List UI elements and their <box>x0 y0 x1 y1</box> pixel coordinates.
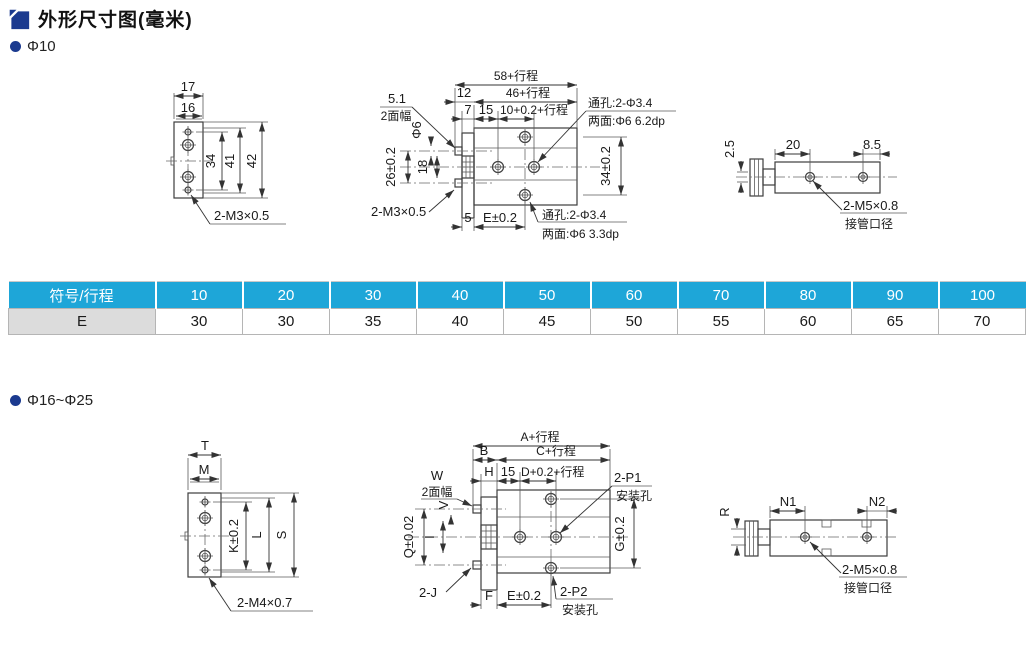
section-marker-icon <box>8 8 30 30</box>
section-phi10-text: Φ10 <box>27 38 56 55</box>
callout-thru-top-2: 两面:Φ6 6.2dp <box>588 114 665 128</box>
dim-side-20: 20 <box>786 137 800 152</box>
dim-plate2-S: S <box>274 530 289 539</box>
bullet-icon <box>10 41 21 52</box>
dim-body-bore: 10+0.2+行程 <box>500 102 568 117</box>
dim-body-5: 5 <box>464 210 471 225</box>
dim-plate-42: 42 <box>244 154 259 168</box>
table-e-value: 65 <box>852 309 939 335</box>
table-header-stroke: 90 <box>852 282 939 309</box>
dim-rod-span: 26±0.2 <box>383 147 398 187</box>
dim-plate-34: 34 <box>203 154 218 168</box>
dim-body-7: 7 <box>464 102 471 117</box>
callout-thru-bot-1: 通孔:2-Φ3.4 <box>542 208 607 222</box>
dim-body-46: 46+行程 <box>506 85 550 100</box>
stroke-dimension-table: 符号/行程 10 20 30 40 50 60 70 80 90 100 E 3… <box>8 281 1026 335</box>
page: { "page": { "title": "外形尺寸图(毫米)", "secti… <box>0 0 1032 663</box>
dim-body-12: 12 <box>457 85 471 100</box>
table-e-value: 60 <box>765 309 852 335</box>
dim-body2-B: B <box>480 443 489 458</box>
callout-port-label: 接管口径 <box>845 216 893 231</box>
callout-p2-label: 安装孔 <box>562 602 598 617</box>
section-phi10-label: Φ10 <box>10 38 56 55</box>
dim-body2-total: A+行程 <box>520 429 559 444</box>
callout-port2-thread: 2-M5×0.8 <box>842 562 897 577</box>
callout-plate-thread: 2-M3×0.5 <box>214 208 269 223</box>
callout-p1-label: 安装孔 <box>616 488 652 503</box>
table-e-value: 70 <box>939 309 1026 335</box>
table-e-value: 35 <box>330 309 417 335</box>
dim-side2-N2: N2 <box>869 494 886 509</box>
page-title: 外形尺寸图(毫米) <box>38 5 193 32</box>
dim-side-25: 2.5 <box>722 140 737 158</box>
section-phi16-label: Φ16~Φ25 <box>10 392 93 409</box>
dim-plate2-M: M <box>199 462 210 477</box>
dim-body-15: 15 <box>479 102 493 117</box>
drawing-phi16-plate: T M K±0.2 L S 2-M4×0.7 <box>180 438 313 611</box>
page-header: 外形尺寸图(毫米) <box>8 5 193 32</box>
label-flat2: 2面幅 <box>422 484 453 499</box>
dim-body2-E: E±0.2 <box>507 588 541 603</box>
dim-flat-width: 5.1 <box>388 91 406 106</box>
bullet-icon <box>10 395 21 406</box>
dim-hole2-span: G±0.2 <box>612 516 627 551</box>
dim-plate2-L: L <box>249 531 264 538</box>
dim-plate2-K: K±0.2 <box>226 519 241 553</box>
dim-rod-dia: Φ6 <box>409 121 424 139</box>
callout-port-thread: 2-M5×0.8 <box>843 198 898 213</box>
dim-side2-R: R <box>717 507 732 516</box>
label-flat: 2面幅 <box>381 108 412 123</box>
dim-rod2-span: Q±0.02 <box>401 516 416 559</box>
callout-p2-thread: 2-P2 <box>560 584 587 599</box>
table-e-value: 45 <box>504 309 591 335</box>
table-header-symbol: 符号/行程 <box>9 282 156 309</box>
dim-body2-H: H <box>484 464 493 479</box>
dim-body2-F: F <box>485 588 493 603</box>
table-e-value: 50 <box>591 309 678 335</box>
table-value-row: E 30 30 35 40 45 50 55 60 65 70 <box>9 309 1026 335</box>
table-header-stroke: 10 <box>156 282 243 309</box>
dim-18: 18 <box>415 160 430 174</box>
callout-thru-bot-2: 两面:Φ6 3.3dp <box>542 227 619 241</box>
table-e-value: 55 <box>678 309 765 335</box>
table-header-stroke: 70 <box>678 282 765 309</box>
table-header-stroke: 30 <box>330 282 417 309</box>
dim-side-85: 8.5 <box>863 137 881 152</box>
drawing-phi16-side: R N1 N2 2-M5×0.8 接管口径 <box>717 494 907 595</box>
table-header-stroke: 80 <box>765 282 852 309</box>
table-header-stroke: 40 <box>417 282 504 309</box>
dim-plate-width-outer: 17 <box>181 79 195 94</box>
table-row-label: E <box>9 309 156 335</box>
drawing-phi10-plate: 17 16 34 41 42 2-M3×0.5 <box>166 79 286 224</box>
dim-plate2-T: T <box>201 438 209 453</box>
dim-body-e: E±0.2 <box>483 210 517 225</box>
callout-body-thread: 2-M3×0.5 <box>371 204 426 219</box>
callout-plate2-thread: 2-M4×0.7 <box>237 595 292 610</box>
table-e-value: 30 <box>243 309 330 335</box>
callout-body2-thread: 2-J <box>419 585 437 600</box>
dim-body-total: 58+行程 <box>494 68 538 83</box>
dim-body2-bore: D+0.2+行程 <box>521 464 584 479</box>
table-header-stroke: 60 <box>591 282 678 309</box>
drawing-phi10-side: 2.5 20 8.5 2-M5×0.8 接管口径 <box>722 137 907 231</box>
callout-thru-top-1: 通孔:2-Φ3.4 <box>588 96 653 110</box>
dim-rod2-dia: V <box>436 500 451 509</box>
dim-body2-C: C+行程 <box>536 443 576 458</box>
dim-plate-width-inner: 16 <box>181 100 195 115</box>
dim-body2-15: 15 <box>501 464 515 479</box>
dim-plate-41: 41 <box>222 154 237 168</box>
table-e-value: 30 <box>156 309 243 335</box>
table-header-row: 符号/行程 10 20 30 40 50 60 70 80 90 100 <box>9 282 1026 309</box>
drawing-phi10-body: 58+行程 12 46+行程 7 15 10+0.2+行程 5.1 2面幅 Φ6… <box>371 68 676 241</box>
callout-port2-label: 接管口径 <box>844 580 892 595</box>
drawing-phi16-body: A+行程 B C+行程 H 15 D+0.2+行程 W 2面幅 V Q±0.02… <box>401 429 652 617</box>
table-e-value: 40 <box>417 309 504 335</box>
dim-hole-span: 34±0.2 <box>598 146 613 186</box>
dim-body2-I: I <box>422 535 437 539</box>
table-header-stroke: 50 <box>504 282 591 309</box>
section-phi16-text: Φ16~Φ25 <box>27 392 93 409</box>
table-header-stroke: 20 <box>243 282 330 309</box>
dim-flat2-width: W <box>431 468 444 483</box>
callout-p1-thread: 2-P1 <box>614 470 641 485</box>
table-header-stroke: 100 <box>939 282 1026 309</box>
dim-side2-N1: N1 <box>780 494 797 509</box>
